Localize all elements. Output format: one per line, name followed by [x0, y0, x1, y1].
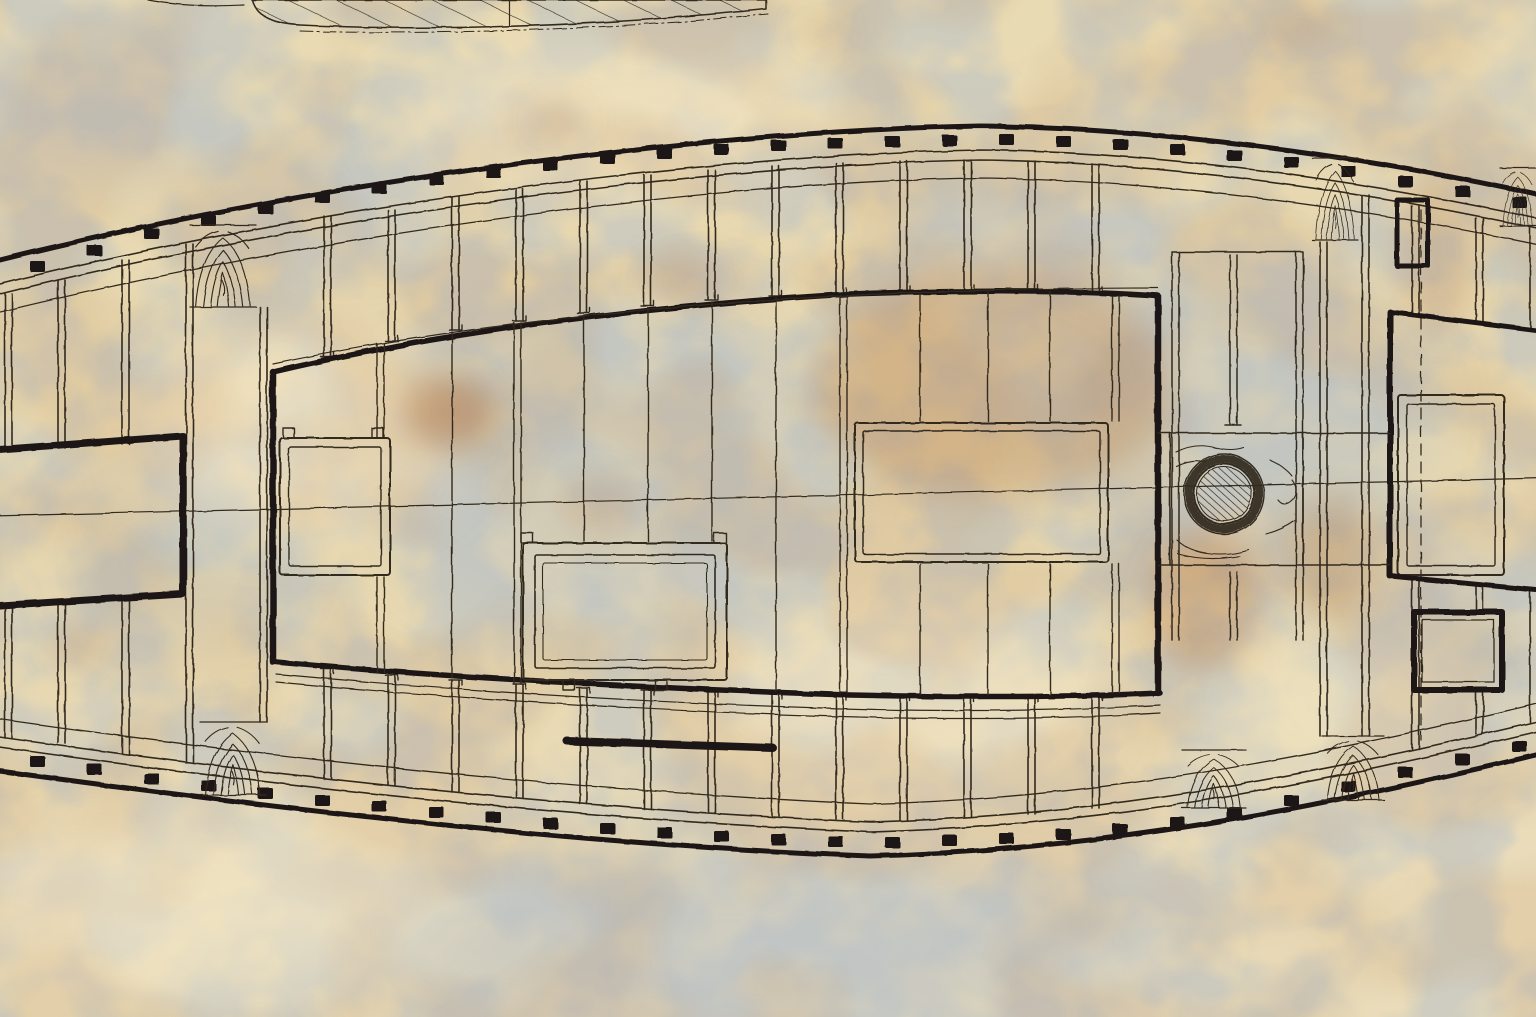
mast-section-hatched	[1197, 467, 1251, 521]
photographed-ship-plan	[0, 0, 1536, 1017]
